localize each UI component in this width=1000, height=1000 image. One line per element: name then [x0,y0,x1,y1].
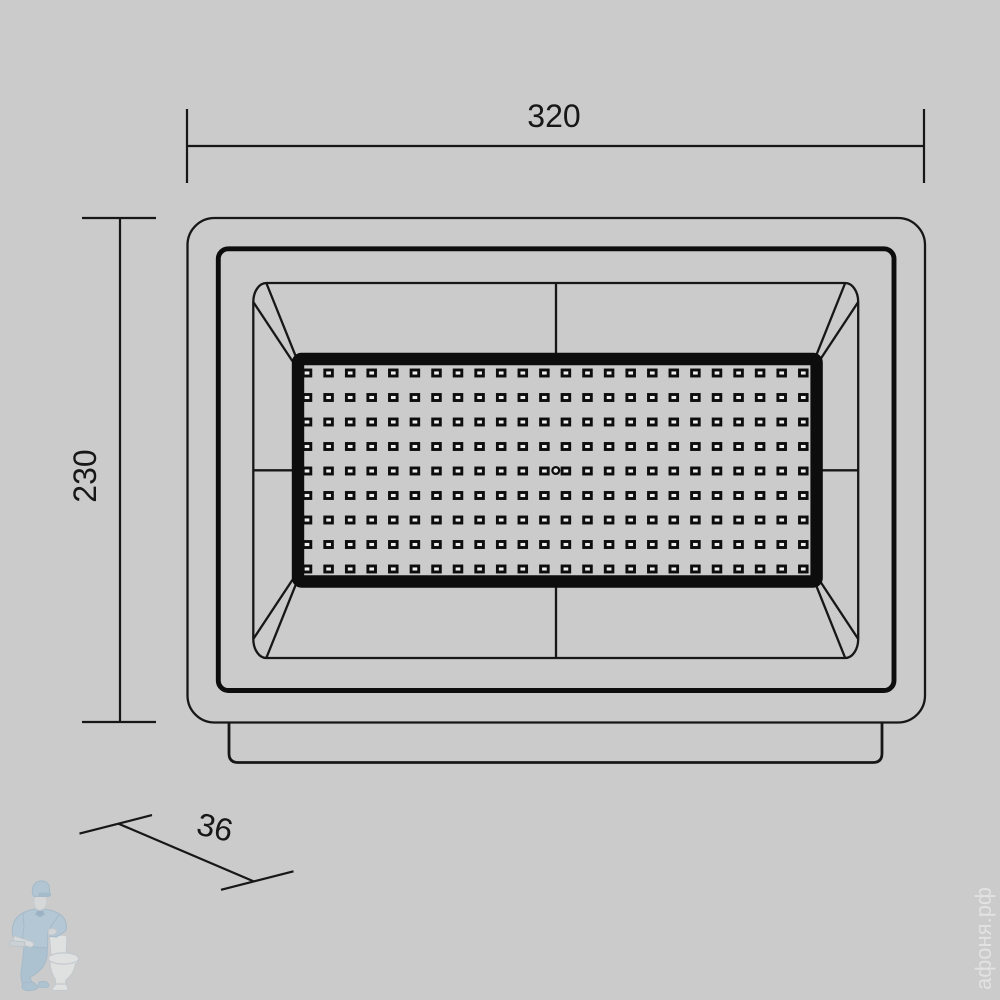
svg-text:афоня.рф: афоня.рф [971,887,996,990]
svg-text:320: 320 [527,98,580,134]
svg-text:230: 230 [67,449,103,502]
